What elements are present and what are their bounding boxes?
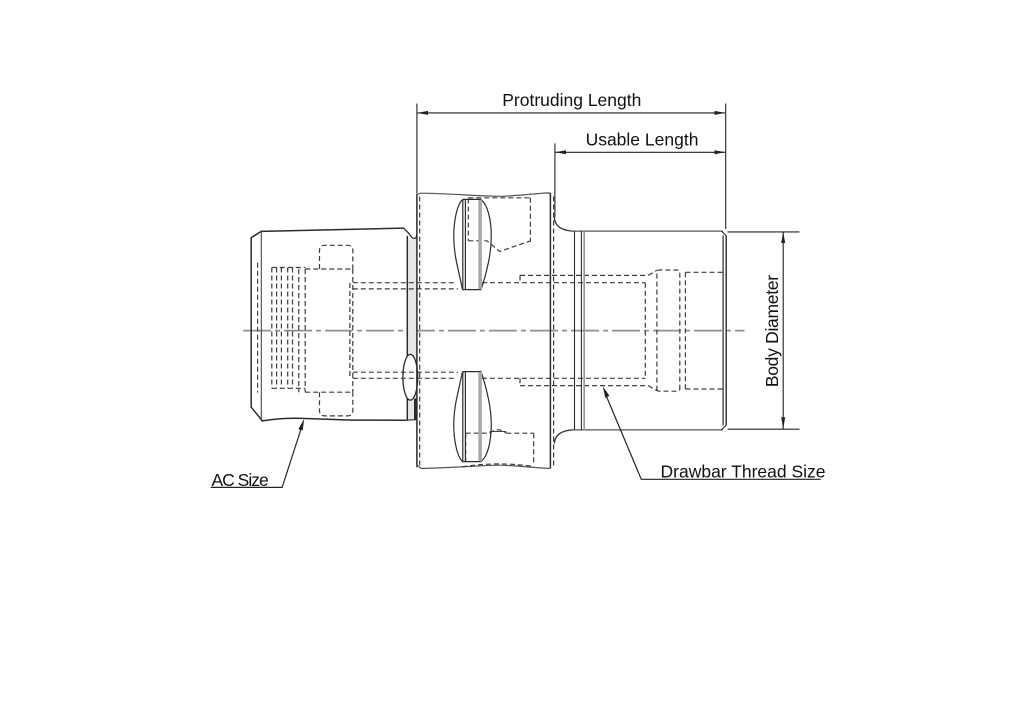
svg-text:Protruding Length: Protruding Length (502, 90, 641, 110)
svg-text:AC Size: AC Size (212, 470, 268, 490)
svg-text:Usable Length: Usable Length (586, 130, 699, 150)
svg-text:Body Diameter: Body Diameter (762, 275, 782, 387)
svg-text:Drawbar Thread Size: Drawbar Thread Size (661, 462, 826, 482)
